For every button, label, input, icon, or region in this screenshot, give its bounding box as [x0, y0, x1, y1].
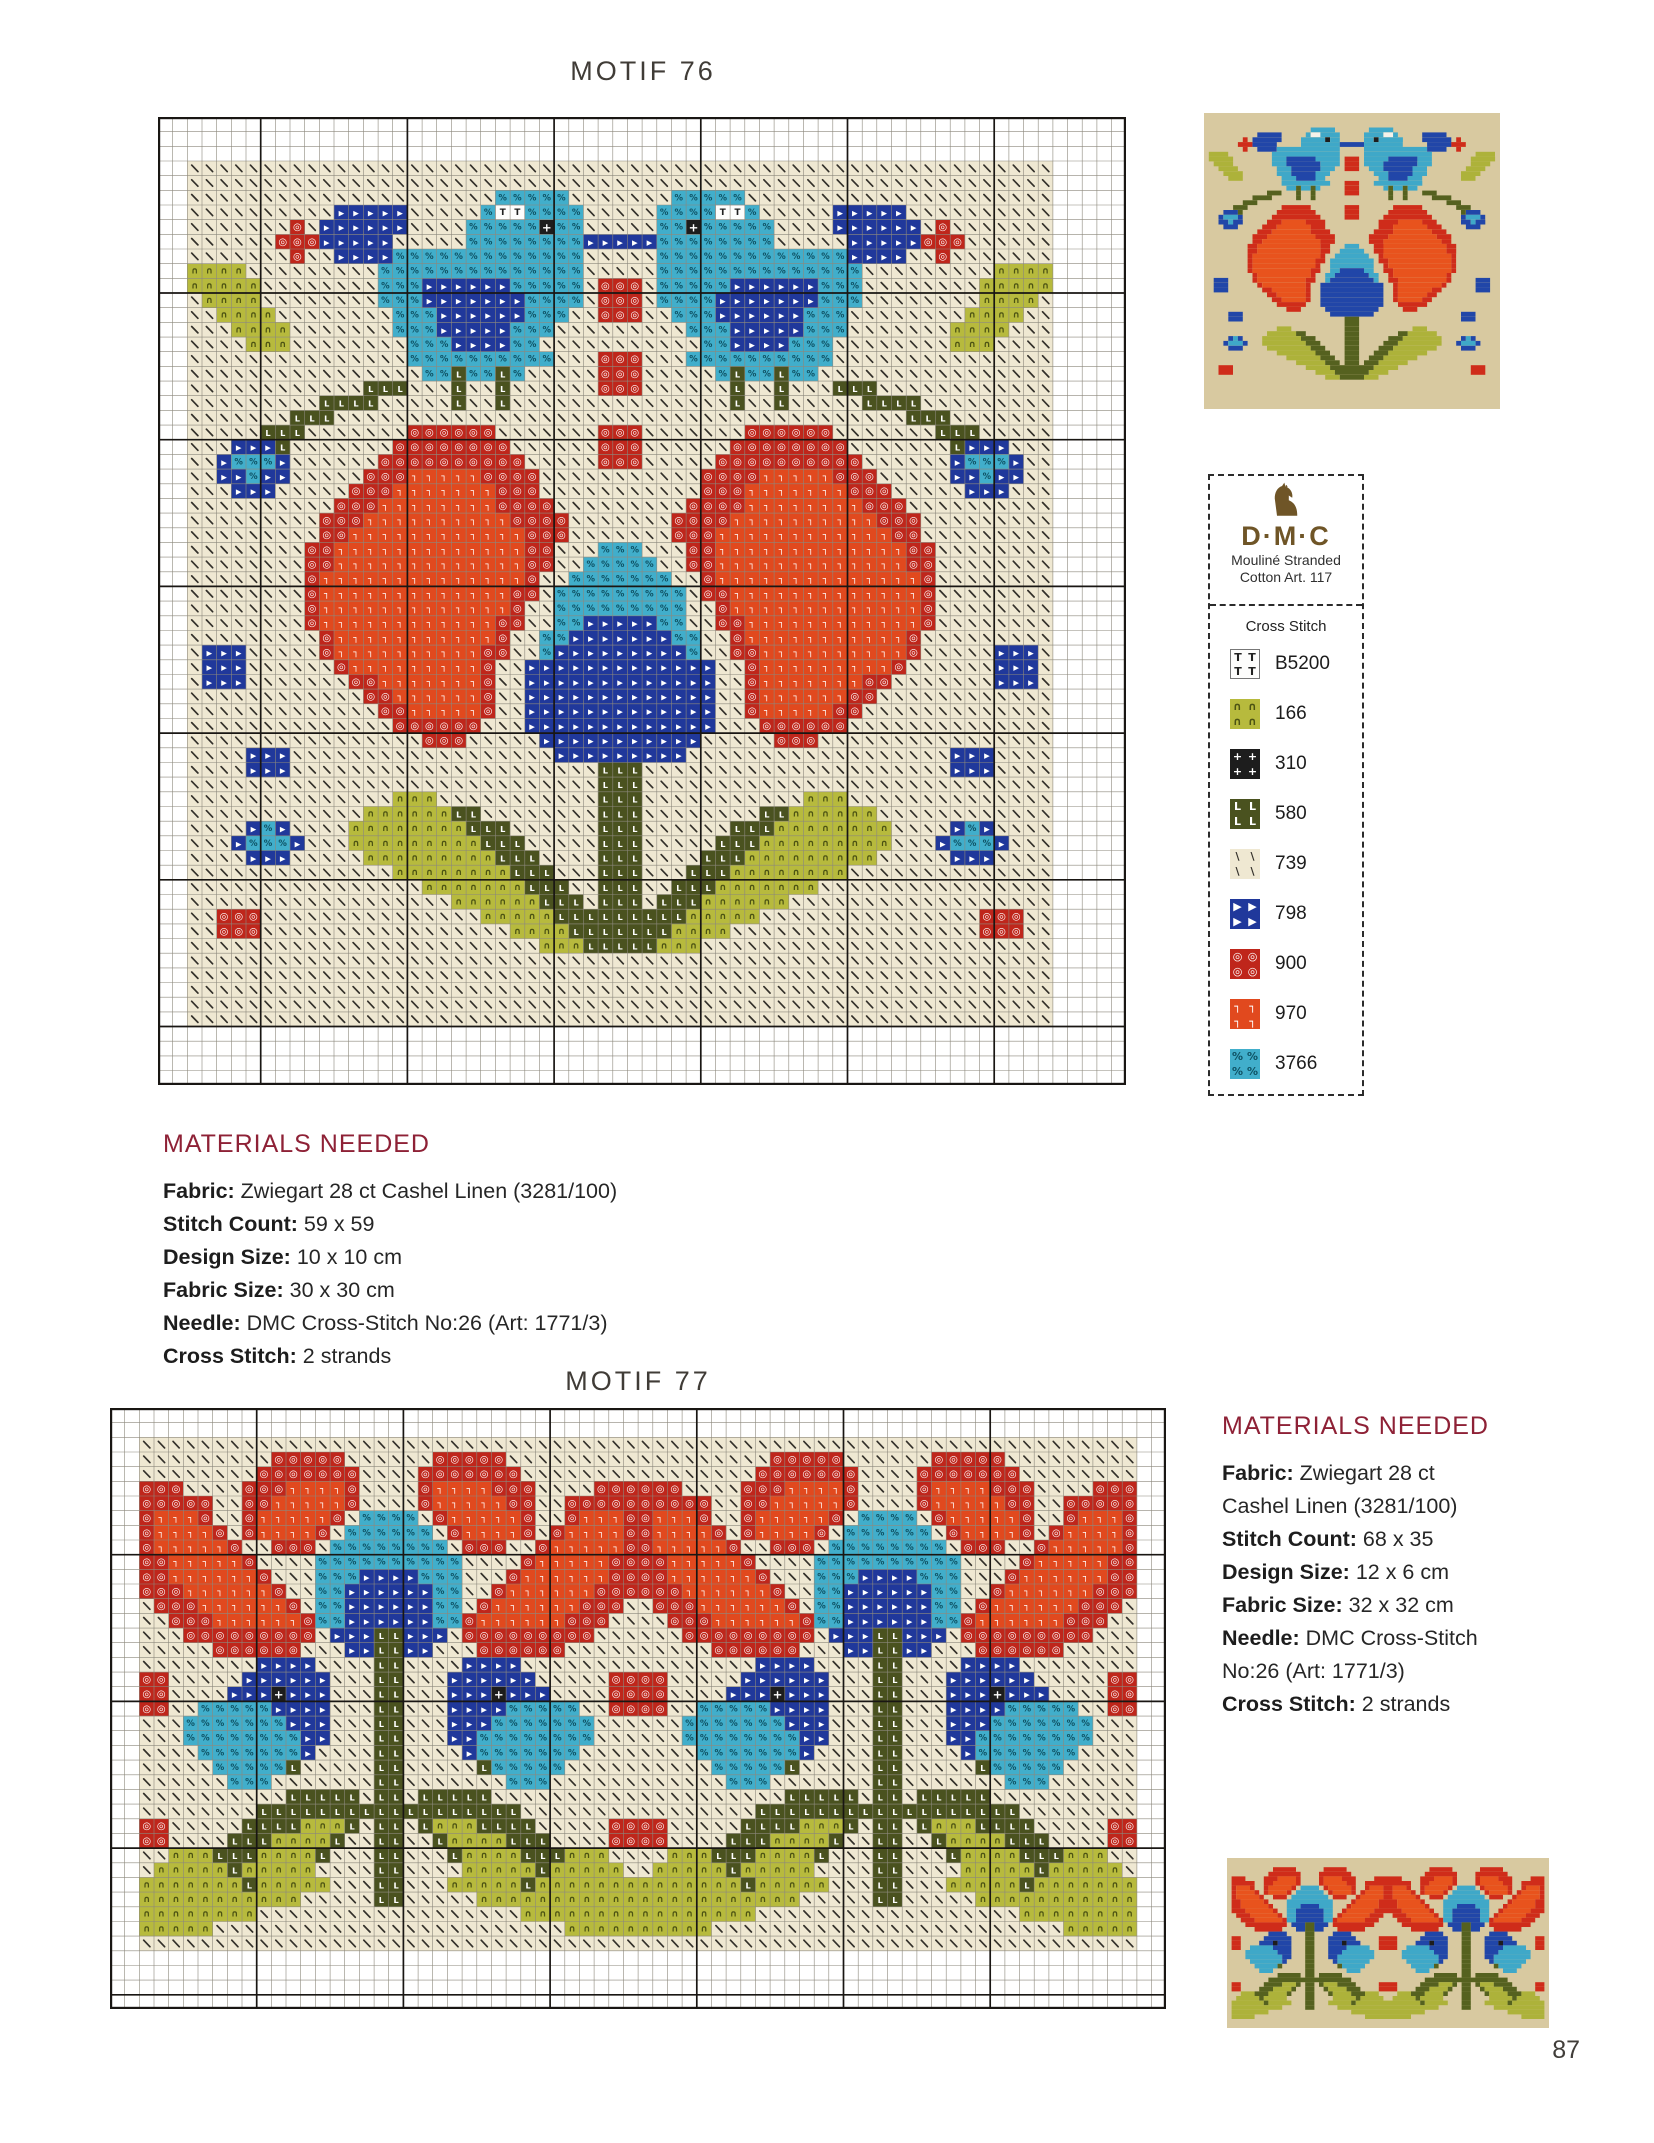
svg-text:◎: ◎: [1081, 1616, 1090, 1627]
svg-text:▶: ▶: [559, 693, 565, 702]
svg-text:◎: ◎: [274, 1543, 283, 1554]
svg-text:∩: ∩: [568, 1880, 575, 1890]
svg-text:◎: ◎: [260, 1469, 269, 1480]
svg-text:◎: ◎: [553, 1645, 562, 1656]
svg-text:L: L: [617, 897, 622, 907]
svg-text:%: %: [759, 1778, 768, 1788]
svg-text:%: %: [704, 223, 713, 233]
svg-text:▶: ▶: [1028, 663, 1034, 672]
svg-text:%: %: [201, 1704, 210, 1714]
svg-text:┐: ┐: [866, 575, 872, 585]
svg-text:∩: ∩: [969, 325, 976, 335]
svg-text:∩: ∩: [715, 1880, 722, 1890]
svg-text:┐: ┐: [426, 487, 432, 497]
svg-text:▶: ▶: [1039, 1690, 1045, 1699]
svg-text:◎: ◎: [909, 648, 918, 659]
svg-text:∩: ∩: [686, 1851, 693, 1861]
svg-text:┐: ┐: [396, 619, 402, 629]
svg-text:◎: ◎: [513, 501, 522, 512]
svg-text:┐: ┐: [778, 501, 784, 511]
svg-text:∩: ∩: [451, 1880, 458, 1890]
svg-text:◎: ◎: [172, 1587, 181, 1598]
svg-text:◎: ◎: [352, 486, 361, 497]
svg-text:%: %: [763, 237, 772, 247]
svg-text:∩: ∩: [983, 296, 990, 306]
svg-text:◎: ◎: [612, 1821, 621, 1832]
svg-text:┐: ┐: [246, 1616, 252, 1626]
svg-text:┐: ┐: [231, 1558, 237, 1568]
svg-text:%: %: [318, 1602, 327, 1612]
svg-text:L: L: [471, 824, 476, 834]
svg-text:∩: ∩: [411, 853, 418, 863]
svg-text:┐: ┐: [895, 545, 901, 555]
svg-text:┐: ┐: [426, 663, 432, 673]
svg-text:%: %: [748, 223, 757, 233]
svg-text:%: %: [498, 355, 507, 365]
svg-text:▶: ▶: [1013, 473, 1019, 482]
svg-text:◎: ◎: [1081, 1631, 1090, 1642]
svg-text:▶: ▶: [441, 326, 447, 335]
svg-text:T: T: [734, 208, 740, 218]
svg-text:L: L: [393, 1866, 398, 1876]
svg-text:∩: ∩: [671, 1895, 678, 1905]
svg-text:▶: ▶: [393, 1617, 399, 1626]
svg-text:◎: ◎: [909, 530, 918, 541]
svg-text:▶: ▶: [379, 1602, 385, 1611]
svg-text:∩: ∩: [837, 853, 844, 863]
svg-text:%: %: [689, 633, 698, 643]
svg-text:◎: ◎: [1067, 1616, 1076, 1627]
svg-text:┐: ┐: [396, 677, 402, 687]
svg-text:◎: ◎: [714, 1631, 723, 1642]
svg-text:▶: ▶: [339, 208, 345, 217]
svg-text:┐: ┐: [910, 575, 916, 585]
svg-text:▶: ▶: [819, 1676, 825, 1685]
svg-text:◎: ◎: [322, 648, 331, 659]
svg-text:┐: ┐: [260, 1587, 266, 1597]
svg-text:┐: ┐: [851, 516, 857, 526]
materials-section-77: MATERIALS NEEDED Fabric: Zwiegart 28 ctC…: [1222, 1412, 1552, 1721]
svg-text:∩: ∩: [994, 1866, 1001, 1876]
svg-text:%: %: [528, 296, 537, 306]
svg-text:▶: ▶: [1013, 458, 1019, 467]
svg-text:∩: ∩: [719, 927, 726, 937]
svg-text:%: %: [817, 1616, 826, 1626]
svg-text:▶: ▶: [467, 1749, 473, 1758]
svg-text:┐: ┐: [172, 1558, 178, 1568]
svg-text:◎: ◎: [480, 1469, 489, 1480]
svg-text:┐: ┐: [367, 663, 373, 673]
svg-text:∩: ∩: [466, 1822, 473, 1832]
svg-text:◎: ◎: [234, 912, 243, 923]
svg-text:◎: ◎: [641, 1675, 650, 1686]
svg-text:◎: ◎: [498, 648, 507, 659]
svg-text:◎: ◎: [157, 1821, 166, 1832]
svg-text:%: %: [763, 267, 772, 277]
svg-text:%: %: [230, 1734, 239, 1744]
svg-text:┐: ┐: [231, 1616, 237, 1626]
svg-text:┐: ┐: [744, 1616, 750, 1626]
svg-text:%: %: [759, 1748, 768, 1758]
svg-text:┐: ┐: [367, 560, 373, 570]
svg-text:▶: ▶: [647, 634, 653, 643]
svg-text:◎: ◎: [626, 1821, 635, 1832]
svg-text:◎: ◎: [748, 428, 757, 439]
svg-text:◎: ◎: [626, 1528, 635, 1539]
svg-text:◎: ◎: [718, 589, 727, 600]
svg-text:▶: ▶: [481, 1690, 487, 1699]
svg-text:∩: ∩: [396, 824, 403, 834]
svg-text:┐: ┐: [202, 1528, 208, 1538]
svg-text:%: %: [421, 1543, 430, 1553]
cross-stitch-section-label: Cross Stitch: [1210, 618, 1362, 635]
svg-text:▶: ▶: [951, 1734, 957, 1743]
svg-text:∩: ∩: [763, 897, 770, 907]
svg-text:◎: ◎: [938, 222, 947, 233]
svg-text:◎: ◎: [425, 442, 434, 453]
svg-text:▶: ▶: [265, 473, 271, 482]
svg-text:▶: ▶: [892, 1602, 898, 1611]
svg-text:┐: ┐: [352, 619, 358, 629]
svg-text:L: L: [980, 1792, 985, 1802]
svg-text:%: %: [935, 1616, 944, 1626]
svg-text:▶: ▶: [544, 722, 550, 731]
svg-text:%: %: [528, 267, 537, 277]
svg-text:▶: ▶: [397, 223, 403, 232]
svg-text:▶: ▶: [364, 1632, 370, 1641]
svg-text:L: L: [305, 1792, 310, 1802]
svg-text:%: %: [440, 369, 449, 379]
svg-text:◎: ◎: [308, 574, 317, 585]
svg-text:▶: ▶: [760, 1676, 766, 1685]
svg-text:┐: ┐: [748, 560, 754, 570]
svg-text:◎: ◎: [293, 237, 302, 248]
svg-text:∩: ∩: [792, 853, 799, 863]
svg-text:▶: ▶: [280, 825, 286, 834]
svg-text:%: %: [230, 1748, 239, 1758]
svg-text:∩: ∩: [411, 809, 418, 819]
svg-text:▶: ▶: [525, 1690, 531, 1699]
svg-text:◎: ◎: [245, 1484, 254, 1495]
svg-text:%: %: [1052, 1763, 1061, 1773]
svg-text:┐: ┐: [275, 1602, 281, 1612]
svg-text:%: %: [616, 560, 625, 570]
svg-text:┐: ┐: [935, 1484, 941, 1494]
svg-text:∩: ∩: [470, 868, 477, 878]
svg-text:∩: ∩: [495, 1866, 502, 1876]
svg-text:┐: ┐: [275, 1514, 281, 1524]
svg-text:◎: ◎: [700, 1513, 709, 1524]
legend-entry: TTTTB5200: [1210, 639, 1362, 689]
svg-text:L: L: [393, 1704, 398, 1714]
svg-text:▶: ▶: [305, 1749, 311, 1758]
svg-text:%: %: [454, 355, 463, 365]
svg-text:∩: ∩: [202, 1895, 209, 1905]
svg-text:▶: ▶: [379, 1617, 385, 1626]
svg-text:┐: ┐: [759, 1514, 765, 1524]
svg-text:∩: ∩: [455, 839, 462, 849]
svg-text:┐: ┐: [719, 545, 725, 555]
svg-text:◎: ◎: [542, 516, 551, 527]
svg-text:▶: ▶: [232, 1690, 238, 1699]
svg-text:∩: ∩: [730, 1895, 737, 1905]
svg-text:◎: ◎: [528, 545, 537, 556]
svg-text:┐: ┐: [470, 516, 476, 526]
svg-text:┐: ┐: [851, 531, 857, 541]
svg-text:┐: ┐: [880, 633, 886, 643]
svg-text:┐: ┐: [1096, 1558, 1102, 1568]
svg-text:L: L: [603, 780, 608, 790]
svg-text:%: %: [729, 1763, 738, 1773]
svg-text:%: %: [821, 296, 830, 306]
svg-text:▶: ▶: [969, 473, 975, 482]
svg-text:◎: ◎: [997, 926, 1006, 937]
svg-text:▶: ▶: [1024, 1690, 1030, 1699]
svg-text:∩: ∩: [187, 1866, 194, 1876]
svg-text:▶: ▶: [481, 1720, 487, 1729]
svg-text:◎: ◎: [689, 545, 698, 556]
svg-text:◎: ◎: [484, 692, 493, 703]
svg-text:┐: ┐: [792, 501, 798, 511]
svg-text:┐: ┐: [748, 531, 754, 541]
color-swatch: ▶▶▶▶: [1230, 899, 1260, 929]
svg-text:%: %: [348, 1543, 357, 1553]
materials-lines: Fabric: Zwiegart 28 ctCashel Linen (3281…: [1222, 1457, 1552, 1721]
svg-text:◎: ◎: [832, 1513, 841, 1524]
svg-text:┐: ┐: [539, 1602, 545, 1612]
svg-text:◎: ◎: [293, 222, 302, 233]
svg-text:%: %: [572, 252, 581, 262]
color-swatch: ∩∩∩∩: [1230, 699, 1260, 729]
svg-text:%: %: [836, 311, 845, 321]
svg-text:∩: ∩: [778, 839, 785, 849]
svg-text:┐: ┐: [818, 1499, 824, 1509]
svg-text:┐: ┐: [290, 1514, 296, 1524]
svg-text:∩: ∩: [1067, 1910, 1074, 1920]
svg-text:┐: ┐: [382, 619, 388, 629]
svg-text:∩: ∩: [1013, 267, 1020, 277]
svg-text:▶: ▶: [969, 766, 975, 775]
svg-text:%: %: [572, 267, 581, 277]
svg-text:▶: ▶: [364, 1602, 370, 1611]
svg-text:%: %: [821, 311, 830, 321]
svg-text:∩: ∩: [807, 883, 814, 893]
svg-text:┐: ┐: [514, 560, 520, 570]
svg-text:∩: ∩: [172, 1910, 179, 1920]
svg-text:∩: ∩: [250, 340, 257, 350]
svg-text:◎: ◎: [616, 428, 625, 439]
svg-text:%: %: [777, 267, 786, 277]
svg-text:∩: ∩: [319, 1836, 326, 1846]
svg-text:┐: ┐: [484, 575, 490, 585]
svg-text:∩: ∩: [763, 868, 770, 878]
svg-text:▶: ▶: [305, 1720, 311, 1729]
svg-text:◎: ◎: [274, 1645, 283, 1656]
svg-text:┐: ┐: [730, 1558, 736, 1568]
svg-text:◎: ◎: [348, 1484, 357, 1495]
svg-text:L: L: [379, 1763, 384, 1773]
svg-text:◎: ◎: [993, 1484, 1002, 1495]
svg-text:┐: ┐: [1082, 1558, 1088, 1568]
svg-text:∩: ∩: [264, 325, 271, 335]
svg-text:%: %: [396, 267, 405, 277]
svg-text:%: %: [675, 252, 684, 262]
svg-text:◎: ◎: [641, 1689, 650, 1700]
svg-text:▶: ▶: [559, 737, 565, 746]
svg-text:▶: ▶: [647, 238, 653, 247]
svg-text:%: %: [201, 1734, 210, 1744]
svg-text:%: %: [832, 1587, 841, 1597]
svg-text:▶: ▶: [999, 473, 1005, 482]
svg-text:%: %: [773, 1763, 782, 1773]
svg-text:┐: ┐: [382, 575, 388, 585]
svg-text:%: %: [201, 1719, 210, 1729]
svg-text:◎: ◎: [318, 1454, 327, 1465]
svg-text:◎: ◎: [440, 736, 449, 747]
svg-text:%: %: [759, 1704, 768, 1714]
svg-text:%: %: [513, 325, 522, 335]
svg-text:L: L: [863, 1807, 868, 1817]
svg-text:%: %: [1023, 1778, 1032, 1788]
svg-text:%: %: [905, 1514, 914, 1524]
svg-text:◎: ◎: [964, 1616, 973, 1627]
svg-text:∩: ∩: [235, 296, 242, 306]
svg-text:%: %: [1023, 1719, 1032, 1729]
materials-heading: MATERIALS NEEDED: [1222, 1412, 1552, 1441]
svg-text:%: %: [817, 1602, 826, 1612]
svg-text:L: L: [452, 1807, 457, 1817]
svg-text:┐: ┐: [1052, 1602, 1058, 1612]
svg-text:L: L: [878, 1792, 883, 1802]
svg-text:∩: ∩: [1097, 1866, 1104, 1876]
svg-text:◎: ◎: [850, 486, 859, 497]
svg-text:L: L: [892, 1734, 897, 1744]
svg-text:┐: ┐: [715, 1543, 721, 1553]
svg-text:◎: ◎: [201, 1631, 210, 1642]
svg-text:∩: ∩: [1027, 296, 1034, 306]
svg-text:L: L: [779, 384, 784, 394]
svg-text:┐: ┐: [583, 1572, 589, 1582]
svg-text:%: %: [993, 1734, 1002, 1744]
svg-text:┐: ┐: [598, 1572, 604, 1582]
svg-text:L: L: [617, 780, 622, 790]
svg-text:∩: ∩: [568, 1866, 575, 1876]
svg-text:∩: ∩: [1111, 1910, 1118, 1920]
svg-text:%: %: [543, 296, 552, 306]
svg-text:◎: ◎: [802, 1469, 811, 1480]
svg-text:%: %: [469, 369, 478, 379]
svg-text:◎: ◎: [773, 1469, 782, 1480]
svg-text:∩: ∩: [466, 1866, 473, 1876]
svg-text:▶: ▶: [320, 1720, 326, 1729]
svg-text:┐: ┐: [700, 1572, 706, 1582]
svg-text:┐: ┐: [1082, 1528, 1088, 1538]
svg-text:┐: ┐: [759, 1602, 765, 1612]
svg-text:┐: ┐: [807, 677, 813, 687]
svg-text:∩: ∩: [304, 1822, 311, 1832]
svg-text:┐: ┐: [411, 604, 417, 614]
svg-text:▶: ▶: [529, 678, 535, 687]
svg-text:%: %: [333, 1558, 342, 1568]
svg-text:∩: ∩: [700, 1851, 707, 1861]
svg-text:∩: ∩: [396, 795, 403, 805]
svg-text:%: %: [450, 1602, 459, 1612]
svg-text:┐: ┐: [499, 604, 505, 614]
svg-text:L: L: [1010, 1822, 1015, 1832]
svg-text:▶: ▶: [1009, 1661, 1015, 1670]
svg-text:∩: ∩: [598, 1866, 605, 1876]
svg-text:%: %: [553, 1748, 562, 1758]
svg-text:%: %: [348, 1572, 357, 1582]
svg-text:◎: ◎: [773, 1587, 782, 1598]
svg-text:┐: ┐: [382, 633, 388, 643]
svg-text:L: L: [617, 795, 622, 805]
svg-text:◎: ◎: [304, 1469, 313, 1480]
svg-text:L: L: [632, 927, 637, 937]
svg-text:%: %: [979, 1734, 988, 1744]
svg-text:%: %: [498, 193, 507, 203]
svg-text:∩: ∩: [158, 1880, 165, 1890]
svg-text:┐: ┐: [895, 604, 901, 614]
svg-text:◎: ◎: [172, 1616, 181, 1627]
svg-text:┐: ┐: [260, 1602, 266, 1612]
svg-text:┐: ┐: [440, 677, 446, 687]
svg-text:◎: ◎: [924, 560, 933, 571]
svg-text:◎: ◎: [846, 1498, 855, 1509]
svg-text:◎: ◎: [1111, 1689, 1120, 1700]
svg-text:∩: ∩: [759, 1866, 766, 1876]
svg-text:%: %: [832, 1543, 841, 1553]
svg-text:L: L: [456, 809, 461, 819]
svg-text:◎: ◎: [1067, 1513, 1076, 1524]
svg-text:┐: ┐: [792, 677, 798, 687]
svg-text:▶: ▶: [603, 707, 609, 716]
svg-text:◎: ◎: [381, 486, 390, 497]
svg-text:┐: ┐: [822, 633, 828, 643]
svg-text:▶: ▶: [511, 1690, 517, 1699]
svg-text:∩: ∩: [554, 1866, 561, 1876]
svg-text:┐: ┐: [851, 619, 857, 629]
svg-text:L: L: [393, 1719, 398, 1729]
svg-text:%: %: [216, 1704, 225, 1714]
svg-text:◎: ◎: [1125, 1543, 1134, 1554]
svg-text:▶: ▶: [588, 663, 594, 672]
legend-entries: TTTTB5200∩∩∩∩166++++310LLLL580\\\\739▶▶▶…: [1210, 639, 1362, 1089]
svg-text:◎: ◎: [802, 1543, 811, 1554]
svg-text:┐: ┐: [158, 1528, 164, 1538]
svg-text:┐: ┐: [671, 1514, 677, 1524]
svg-text:┐: ┐: [411, 648, 417, 658]
svg-text:▶: ▶: [320, 1676, 326, 1685]
svg-text:%: %: [392, 1558, 401, 1568]
svg-text:▶: ▶: [1009, 1676, 1015, 1685]
svg-text:▶: ▶: [559, 722, 565, 731]
svg-text:┐: ┐: [436, 1499, 442, 1509]
motif76-chart: %%%%%%%%%%▶▶▶▶▶%TT%%%%%%%%TT%▶▶▶▶▶◎▶▶▶▶▶…: [158, 117, 1126, 1085]
svg-text:◎: ◎: [230, 1543, 239, 1554]
svg-text:L: L: [951, 1851, 956, 1861]
svg-text:∩: ∩: [396, 868, 403, 878]
svg-text:┐: ┐: [851, 575, 857, 585]
svg-text:▶: ▶: [603, 722, 609, 731]
svg-text:∩: ∩: [510, 1866, 517, 1876]
svg-text:▶: ▶: [804, 1734, 810, 1743]
svg-text:L: L: [339, 399, 344, 409]
svg-text:∩: ∩: [495, 1895, 502, 1905]
svg-text:◎: ◎: [465, 1616, 474, 1627]
svg-text:%: %: [847, 1572, 856, 1582]
svg-text:%: %: [484, 237, 493, 247]
